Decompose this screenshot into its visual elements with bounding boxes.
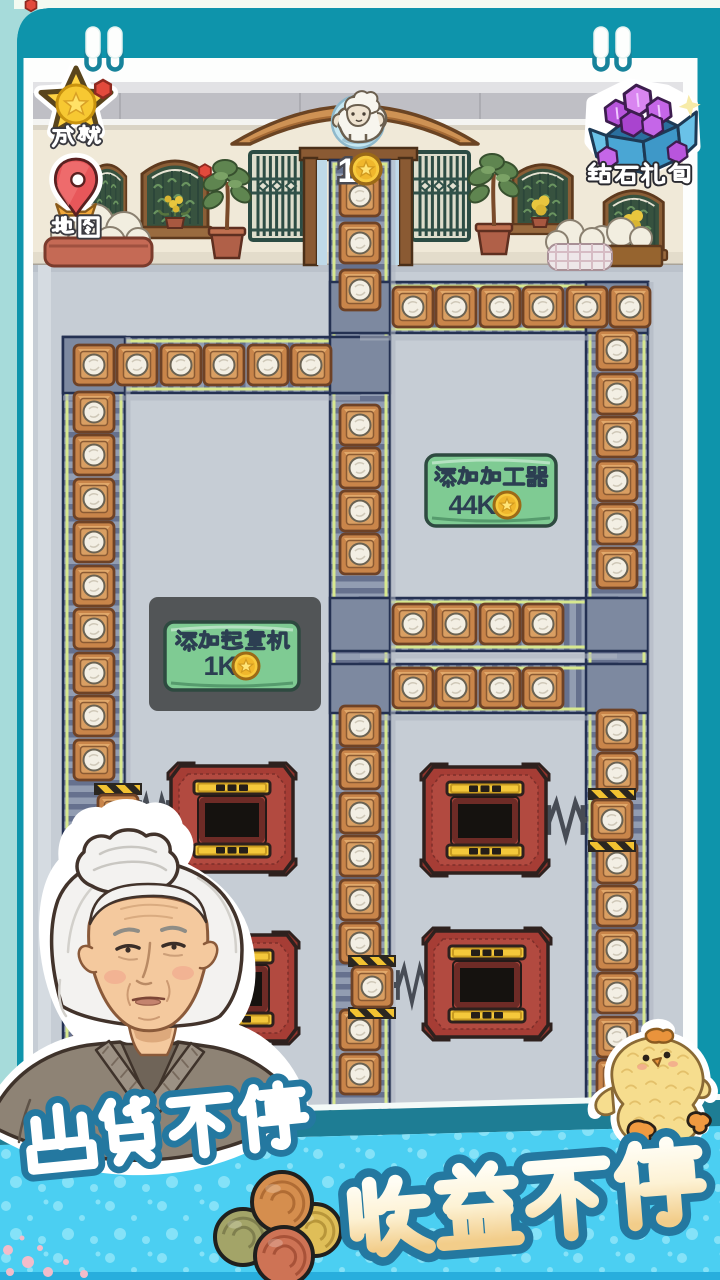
- svg-text:44K: 44K: [448, 490, 496, 520]
